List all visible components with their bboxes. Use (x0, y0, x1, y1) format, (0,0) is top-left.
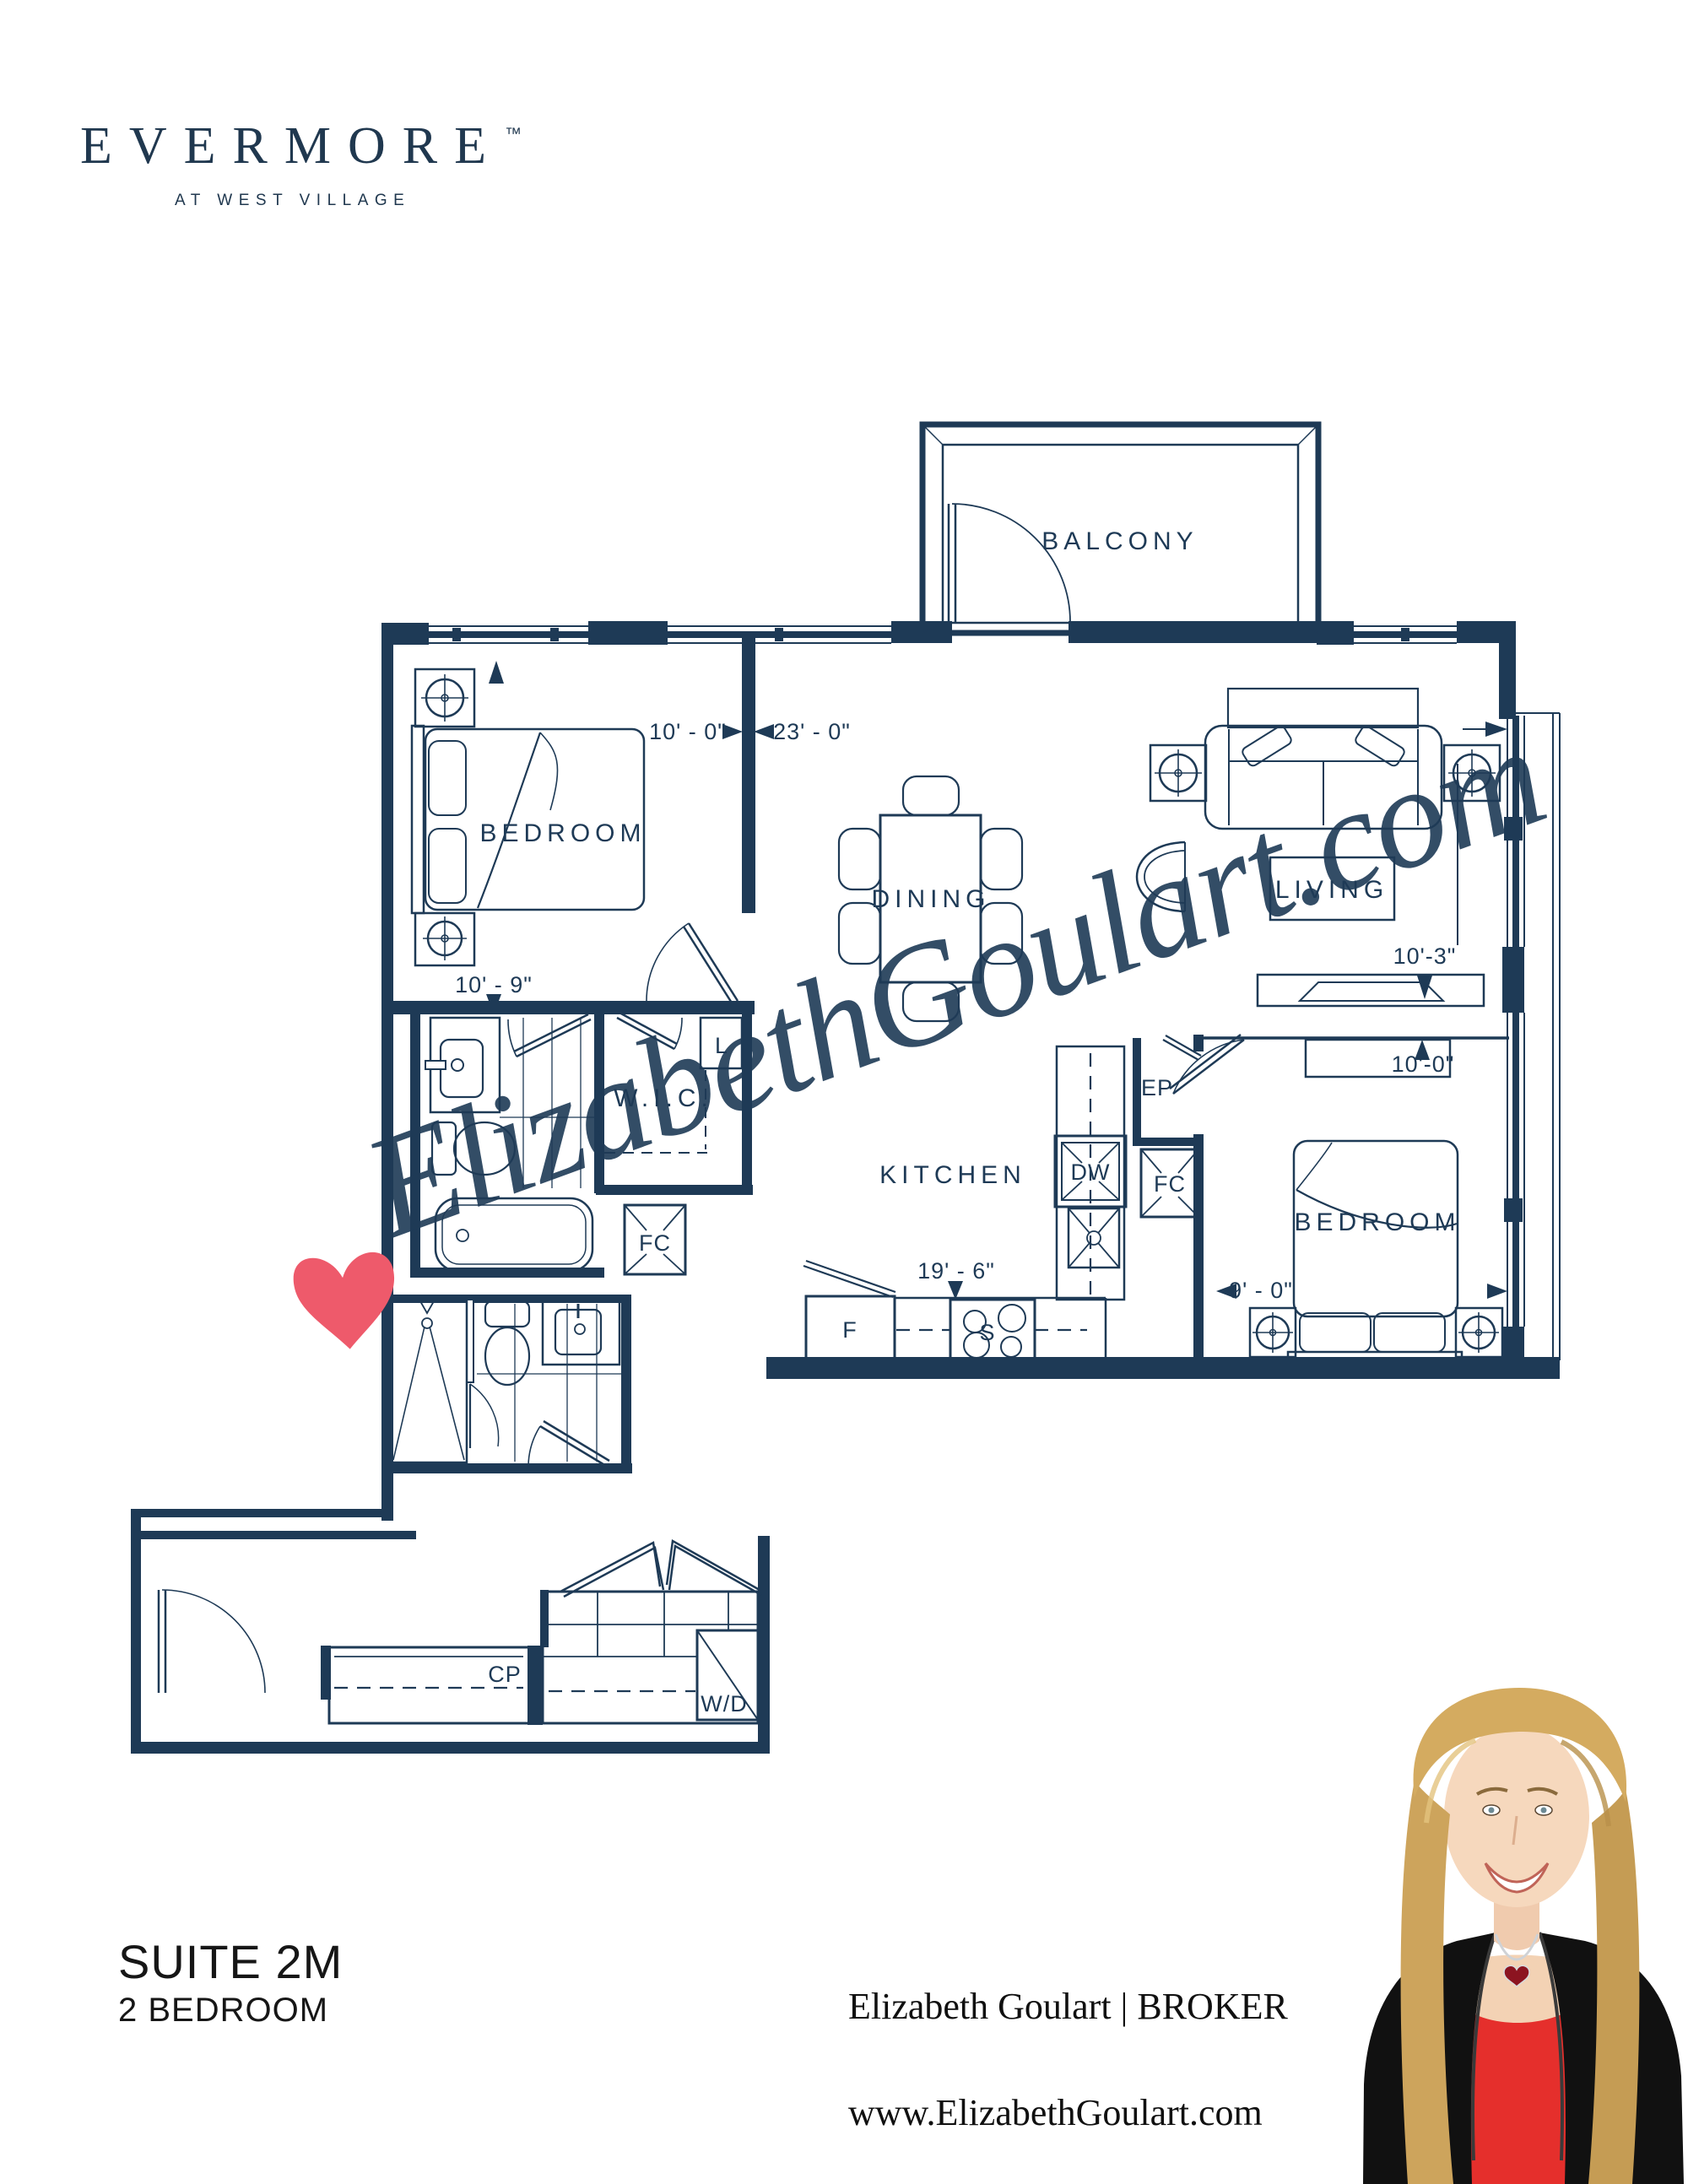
dim-bedroom2-width: 10'-0" (1392, 1051, 1455, 1077)
suite-type: 2 BEDROOM (118, 1992, 328, 2030)
floorplan-sheet: EVERMORE™ AT WEST VILLAGE (0, 0, 1688, 2184)
label-kitchen: KITCHEN (879, 1161, 1026, 1189)
dim-bedroom1-depth: 10' - 9" (455, 972, 533, 997)
tag-fc2: FC (1154, 1171, 1186, 1197)
entry-closets (329, 1592, 758, 1723)
dim-living-width: 10'-3" (1393, 943, 1457, 969)
dim-overall-width: 23' - 0" (773, 719, 851, 744)
watermark: ElizabethGoulart.com (290, 695, 1561, 1355)
dim-bedroom1-width: 10' - 0" (649, 719, 727, 744)
bedroom2-furniture (1250, 1040, 1502, 1364)
agent-name: Elizabeth Goulart | BROKER (848, 1985, 1288, 2028)
agent-website: www.ElizabethGoulart.com (848, 2091, 1263, 2134)
bedroom1-furniture (412, 669, 644, 965)
broker-photo (1363, 1688, 1684, 2184)
label-bedroom2: BEDROOM (1294, 1208, 1460, 1236)
bathroom2-fixtures (391, 1301, 621, 1462)
tag-wd: W/D (701, 1691, 747, 1716)
tag-fridge: F (842, 1317, 858, 1343)
tag-stove: S (979, 1320, 995, 1345)
label-balcony: BALCONY (1041, 527, 1198, 555)
tag-ep: EP (1141, 1075, 1173, 1100)
dim-kitchen-run: 19' - 6" (917, 1258, 995, 1284)
tag-cp: CP (488, 1662, 522, 1687)
label-bedroom1: BEDROOM (479, 819, 646, 847)
suite-name: SUITE 2M (118, 1934, 343, 1989)
dim-bedroom2-depth: 9' - 0" (1229, 1278, 1293, 1303)
tag-dw: DW (1071, 1160, 1111, 1185)
tag-fc1: FC (639, 1230, 671, 1256)
floorplan-drawing: BALCONY BEDROOM DINING LIVING KITCHEN W.… (0, 0, 1688, 2184)
